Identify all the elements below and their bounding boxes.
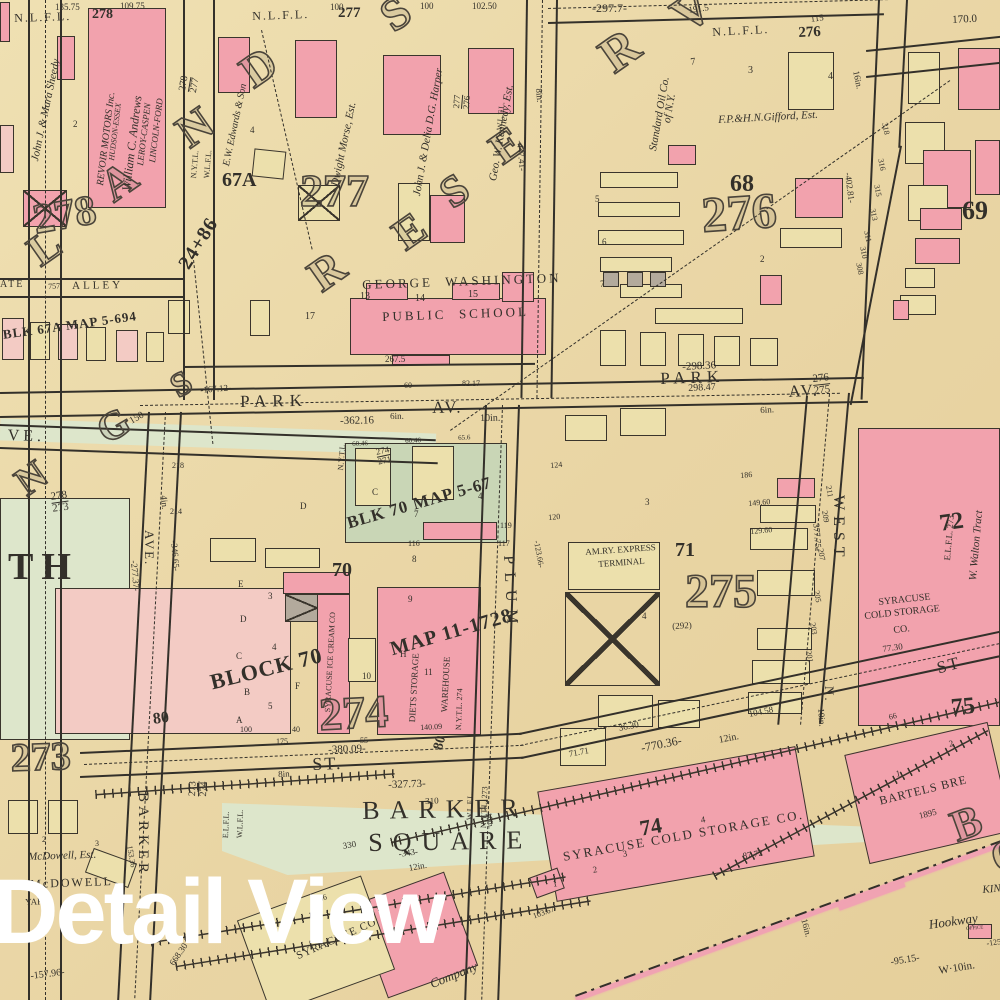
block-number-outline: R xyxy=(300,243,354,300)
street-label: VE. xyxy=(7,428,45,445)
rowhouse xyxy=(146,332,164,362)
building xyxy=(210,538,256,562)
building xyxy=(757,570,815,596)
map-label: -167.12- xyxy=(200,383,231,395)
building xyxy=(975,140,1000,195)
map-label: 3 xyxy=(268,592,273,601)
map-label: 116 xyxy=(408,540,420,548)
map-label: -125 xyxy=(986,938,1000,948)
building xyxy=(565,415,607,441)
map-label: W.L.F.L. xyxy=(203,150,213,179)
map-label: W.L.F.L. xyxy=(466,792,475,821)
map-label: 8in. xyxy=(534,88,544,102)
street-label: BARKER xyxy=(362,795,528,824)
map-label: 55 xyxy=(360,737,368,745)
map-label: -298.36- xyxy=(682,360,720,373)
map-label: (292) xyxy=(672,621,692,631)
map-label: H xyxy=(400,650,407,659)
map-label: 2 xyxy=(760,255,765,264)
map-label: 60.46 xyxy=(405,437,421,445)
building xyxy=(893,300,909,320)
map-label: 4 xyxy=(700,815,706,825)
map-label: 7 xyxy=(600,280,605,289)
lot-line xyxy=(84,745,524,765)
building xyxy=(598,202,680,217)
map-label: 5 xyxy=(268,702,273,711)
building xyxy=(600,330,626,366)
map-label: 5 xyxy=(595,195,600,204)
map-label: 119 xyxy=(500,522,512,530)
map-label: N.Y.T.L. xyxy=(190,150,200,178)
map-label: 310 xyxy=(425,797,439,806)
map-label: 10in. xyxy=(484,812,495,829)
map-label: 104.58 xyxy=(748,705,774,719)
building xyxy=(750,338,778,366)
map-label: 14 xyxy=(415,294,425,304)
map-label: 3 xyxy=(622,849,628,859)
map-label: 80 xyxy=(152,710,170,728)
street-label: WEST xyxy=(830,495,846,563)
building xyxy=(8,800,38,834)
building xyxy=(627,272,643,287)
map-label: 205 xyxy=(812,590,822,603)
map-label: 10in. xyxy=(480,414,500,424)
map-label: 175 xyxy=(276,738,288,746)
building xyxy=(423,522,497,540)
map-label: TH xyxy=(8,548,79,586)
street-line xyxy=(551,0,558,398)
map-label: -95.15- xyxy=(890,953,920,967)
map-label: 10 xyxy=(362,672,371,681)
map-label: 298.47 xyxy=(688,383,716,394)
building xyxy=(265,548,320,568)
map-label: A xyxy=(236,716,243,725)
building xyxy=(905,268,935,288)
map-label: -327.73- xyxy=(388,779,426,791)
street-label: N.L.F.L. xyxy=(712,23,770,38)
building xyxy=(600,172,678,188)
building xyxy=(0,2,10,42)
map-label: W·10in. xyxy=(938,960,976,977)
map-label: 214 xyxy=(170,508,182,516)
map-label: CO. xyxy=(893,624,910,636)
block-number-outline: 273 xyxy=(10,736,71,778)
building xyxy=(252,148,287,179)
map-label: -380.09- xyxy=(328,744,366,756)
map-label: 117 xyxy=(498,540,510,548)
map-label: 211 xyxy=(824,485,834,498)
map-label: 13 xyxy=(360,292,370,302)
map-label: KIN xyxy=(982,883,1000,896)
map-label: 68 xyxy=(730,172,754,196)
street-line xyxy=(0,377,864,394)
street-label: AV. xyxy=(432,398,463,416)
map-label: 315 xyxy=(872,184,882,197)
map-label: 70 xyxy=(332,560,352,580)
block-number-outline: R xyxy=(590,19,648,81)
map-label: 115 xyxy=(810,13,824,24)
map-label: -123.66- xyxy=(532,540,545,568)
map-label: 4 xyxy=(478,492,483,501)
street-line xyxy=(0,296,183,298)
street-label: AVE. xyxy=(143,530,156,566)
map-label: John J. & Mara Sheedy xyxy=(30,58,62,162)
building xyxy=(655,308,743,324)
map-label: 124 xyxy=(550,461,563,470)
block-fraction: 274271 xyxy=(375,445,392,466)
map-label: F xyxy=(295,682,300,691)
map-label: C xyxy=(236,652,242,661)
map-label: 318 xyxy=(880,122,890,135)
street-label: PARK xyxy=(240,392,308,410)
map-label: -297.7- xyxy=(592,2,627,14)
map-label: 67A xyxy=(222,170,256,190)
map-label: 218 xyxy=(172,462,184,470)
map-label: 15 xyxy=(468,290,478,300)
map-label: 9 xyxy=(408,595,413,604)
atlas-map-page: PARKAV.PARKAV.ST.STPLUMWESTN.BARKERAVE.V… xyxy=(0,0,1000,1000)
building xyxy=(958,48,1000,110)
street-line xyxy=(80,733,522,754)
map-label: 278 xyxy=(92,8,113,22)
map-label: 316 xyxy=(876,158,886,171)
building-diets-warehouse xyxy=(377,587,481,735)
map-label: 12in. xyxy=(718,732,740,746)
street-label: N. xyxy=(823,686,836,703)
map-label: 17 xyxy=(305,312,315,322)
map-label: 135.75 xyxy=(55,3,80,12)
street-label: N.L.F.L. xyxy=(14,10,71,24)
map-label: 7 xyxy=(690,57,696,68)
map-label: 10in. xyxy=(816,708,827,727)
block-number-outline: N xyxy=(8,453,55,502)
map-label: 16in. xyxy=(799,918,812,938)
street-label: SQUARE xyxy=(368,827,532,856)
map-label: 186 xyxy=(740,471,753,480)
map-label: 6in. xyxy=(760,405,774,415)
map-label: 207 xyxy=(816,548,826,561)
map-label: 69 xyxy=(962,198,988,224)
map-label: 170.0 xyxy=(952,14,977,26)
block-fraction: 278277 xyxy=(178,75,201,93)
map-label: 140.09 xyxy=(420,723,442,732)
map-label: 310 xyxy=(858,246,868,259)
map-label: 100 xyxy=(330,3,344,12)
block-number-outline: 275 xyxy=(685,568,757,616)
map-label: 75 xyxy=(950,694,976,720)
building xyxy=(908,52,940,104)
map-label: 16in. xyxy=(851,70,864,90)
building xyxy=(915,238,960,264)
map-label: 11 xyxy=(424,668,433,677)
map-label: 7 xyxy=(414,510,419,519)
map-label: -447.41- xyxy=(515,140,527,171)
building xyxy=(760,275,782,305)
building xyxy=(920,208,962,230)
block-fraction: 277276 xyxy=(452,95,472,110)
map-label: -362.16 xyxy=(340,415,374,427)
express-yard xyxy=(565,592,660,686)
map-label: 201 xyxy=(804,650,814,663)
map-label: 109.75 xyxy=(120,2,145,11)
rowhouse xyxy=(116,330,138,362)
building xyxy=(780,228,842,248)
building xyxy=(600,257,672,272)
map-label: 209 xyxy=(820,510,830,523)
map-label: 60 xyxy=(404,382,412,390)
map-label: 82.17 xyxy=(462,380,480,388)
building xyxy=(598,230,684,245)
map-label: 100 xyxy=(420,2,434,11)
map-label: 102.50 xyxy=(472,2,497,11)
map-label: -277.37- xyxy=(129,560,141,591)
map-label: 757 xyxy=(48,282,60,291)
block-fraction: 276275 xyxy=(812,372,831,397)
map-label: E.L.F.L. xyxy=(222,812,231,839)
street-label: ST. xyxy=(312,754,343,773)
map-label: N.Y.T.L. 274 xyxy=(455,688,464,730)
street-line xyxy=(183,363,535,368)
map-label: W.L.F.L. xyxy=(236,810,245,839)
map-label: 36.30 xyxy=(618,720,640,733)
lot-line xyxy=(192,250,213,444)
map-label: 71 xyxy=(675,540,695,560)
detail-view-caption: Detail View xyxy=(0,860,443,965)
map-label: 313 xyxy=(868,208,878,221)
map-label: E.W. Edwards & Son xyxy=(222,83,249,167)
block-number-outline: S xyxy=(165,366,198,405)
map-label: 65.6 xyxy=(458,434,471,442)
map-label: D xyxy=(240,615,247,624)
block-fraction: 278273 xyxy=(50,490,70,515)
map-label: -346.65- xyxy=(169,540,181,571)
map-label: 2 xyxy=(42,836,46,844)
map-label: 308 xyxy=(854,262,864,275)
map-label: 4in. xyxy=(159,495,169,509)
building xyxy=(168,300,190,334)
map-label: 4 xyxy=(828,72,833,82)
building xyxy=(48,800,78,834)
map-label: 276 xyxy=(798,25,821,41)
building xyxy=(620,408,666,436)
map-label: 267.5 xyxy=(385,355,405,364)
map-label: 6in. xyxy=(390,412,404,421)
map-label: of N.Y. xyxy=(662,93,678,124)
building xyxy=(0,125,14,173)
map-label: 3 xyxy=(95,840,99,848)
map-label: D xyxy=(300,502,307,511)
map-label: 60.46 xyxy=(352,440,368,448)
map-label: 2 xyxy=(73,120,78,129)
building xyxy=(777,478,815,498)
building xyxy=(603,272,619,287)
map-label: -770.36- xyxy=(640,734,683,754)
map-label: -377.75- xyxy=(811,520,823,551)
building xyxy=(668,145,696,165)
street-label: ALLEY xyxy=(72,280,123,292)
street-line xyxy=(184,0,186,400)
map-label: F.P.&H.N.Gifford, Est. xyxy=(718,110,818,126)
map-label: 100 xyxy=(240,726,252,734)
block-number-outline: O xyxy=(985,828,1000,881)
map-label: 8in. xyxy=(278,770,292,779)
map-label: 3 xyxy=(645,498,650,507)
map-label: 6 xyxy=(602,238,607,247)
street-label: N.L.F.L. xyxy=(252,8,309,22)
map-label: 3 xyxy=(748,66,753,76)
map-label: 4 xyxy=(642,612,647,621)
map-label: 8 xyxy=(412,555,417,564)
map-label: C xyxy=(372,488,378,497)
building xyxy=(760,505,816,523)
building-morse xyxy=(295,40,337,118)
block-number-outline: S xyxy=(372,0,419,40)
map-label: 4 xyxy=(250,126,255,135)
map-label: B xyxy=(244,688,250,697)
map-label: 311 xyxy=(862,230,872,243)
street-label: ATE xyxy=(0,280,24,290)
building xyxy=(250,300,270,336)
map-label: E xyxy=(238,580,244,589)
map-label: 203 xyxy=(808,622,818,635)
map-label: 40 xyxy=(292,726,300,734)
map-label: 120 xyxy=(548,513,561,522)
block-fraction: 273274 xyxy=(188,781,210,797)
street-line xyxy=(214,0,216,400)
building xyxy=(640,332,666,366)
map-label: 4 xyxy=(272,643,277,652)
map-label: -402.81- xyxy=(843,172,856,204)
rowhouse xyxy=(86,327,106,361)
